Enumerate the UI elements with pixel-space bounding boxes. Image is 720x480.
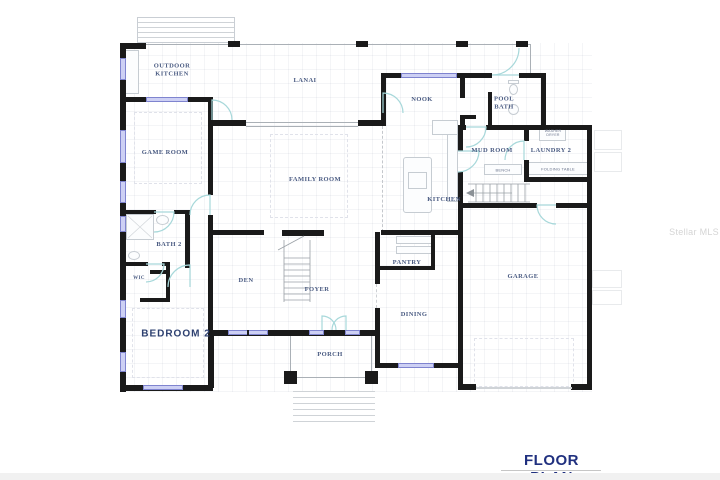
lanai-edge-line [126,44,531,45]
wall-segment [458,125,463,151]
window [120,58,126,80]
room-label-bedroom2: BEDROOM 2 [141,328,211,341]
slider-door-line [246,126,358,127]
kitchen-open-edge [382,126,383,232]
bath2-sink [156,215,169,225]
wall-segment [460,78,465,98]
kitchen-counter [447,124,458,202]
porch-step [293,421,375,422]
garage-apron-outline [474,338,574,387]
slider-door-line [246,122,358,123]
wall-segment [375,232,380,284]
column-post [456,41,468,47]
ac-equipment-pad [592,290,622,305]
equipment-pad [594,152,622,172]
wall-segment [431,230,435,270]
window [398,363,434,368]
wall-segment [524,177,591,182]
kitchen-counter [432,120,458,135]
pantry-shelf [396,236,434,244]
title-underline [501,470,601,471]
wall-segment [587,125,592,389]
wall-segment [120,43,146,49]
room-label-foyer: FOYER [305,286,330,294]
porch-step [293,415,375,416]
wall-segment [381,230,461,235]
pool-bath-toilet [509,84,518,95]
room-label-game-room: GAME ROOM [142,149,188,157]
porch-post [365,371,378,384]
wall-segment [524,125,529,141]
porch-post [284,371,297,384]
shower [126,214,154,240]
porch-step [293,403,375,404]
room-label-garage: GARAGE [508,273,539,281]
wall-segment [381,73,386,126]
wall-segment [208,97,213,195]
room-label-wic: WIC [133,276,145,283]
wall-segment [460,115,476,119]
column-post [356,41,368,47]
room-label-outdoor-kitchen: OUTDOOR KITCHEN [154,63,190,80]
window [120,130,126,163]
wall-segment [458,203,537,208]
room-label-nook: NOOK [411,96,432,104]
porch-edge [290,377,372,378]
porch-step [293,397,375,398]
wall-segment [458,384,476,390]
pantry-shelf [396,246,434,254]
outdoor-kitchen-counter [125,50,139,94]
step-line [138,22,234,23]
wall-segment [208,120,246,126]
annotation-folding-table: FOLDING TABLE [541,166,575,171]
window [401,73,457,78]
room-label-lanai: LANAI [294,77,317,85]
window [309,330,324,335]
wall-segment [208,230,264,235]
lanai-steps [137,17,235,43]
island-cooktop [408,172,427,189]
page-bottom-strip [0,473,720,480]
room-label-laundry: LAUNDRY 2 [531,147,572,155]
column-post [516,41,528,47]
wall-segment [124,262,148,266]
step-line [138,32,234,33]
wall-segment [150,270,166,274]
foyer-dining-opening [376,284,378,308]
equipment-pad [594,130,622,150]
window [120,352,126,372]
room-label-pantry: PANTRY [393,259,422,267]
step-line [138,37,234,38]
window [143,385,183,390]
lanai-edge-line [530,44,531,74]
tray-outline-bedroom [132,308,204,378]
stellar-mls-watermark: Stellar MLS [669,227,719,237]
column-post [228,41,240,47]
annotation-bench: BENCH [495,167,510,172]
wall-segment [140,298,170,302]
window-mullion [247,330,249,335]
wall-segment [358,120,386,126]
room-label-porch: PORCH [317,351,342,359]
porch-step [293,409,375,410]
room-label-mud-room: MUD ROOM [471,147,512,155]
wall-segment [486,125,544,130]
wall-segment [166,262,170,302]
window [120,181,126,203]
window [345,330,360,335]
wall-segment [185,210,190,268]
wall-segment [458,203,463,389]
room-label-den: DEN [239,277,254,285]
wall-segment [375,308,380,368]
room-label-family-room: FAMILY ROOM [289,176,341,184]
floor-plan-page: OUTDOOR KITCHEN LANAI NOOK POOL BATH GAM… [0,0,720,480]
bath2-toilet [128,251,140,260]
annotation-washer-dryer: WASHER DRYER [545,130,561,138]
porch-step [293,391,375,392]
wall-segment [556,203,591,208]
wall-segment [282,230,324,236]
window [120,300,126,318]
wall-segment [124,210,156,214]
room-label-pool-bath: POOL BATH [494,96,514,113]
wall-segment [571,384,592,390]
ac-equipment-pad [592,270,622,288]
room-label-kitchen: KITCHEN [427,196,461,204]
step-line [138,27,234,28]
garage-door-line [476,387,572,389]
window [146,97,188,102]
window [120,216,126,232]
room-label-dining: DINING [401,311,428,319]
room-label-bath2: BATH 2 [156,241,181,249]
wall-segment [541,73,546,130]
